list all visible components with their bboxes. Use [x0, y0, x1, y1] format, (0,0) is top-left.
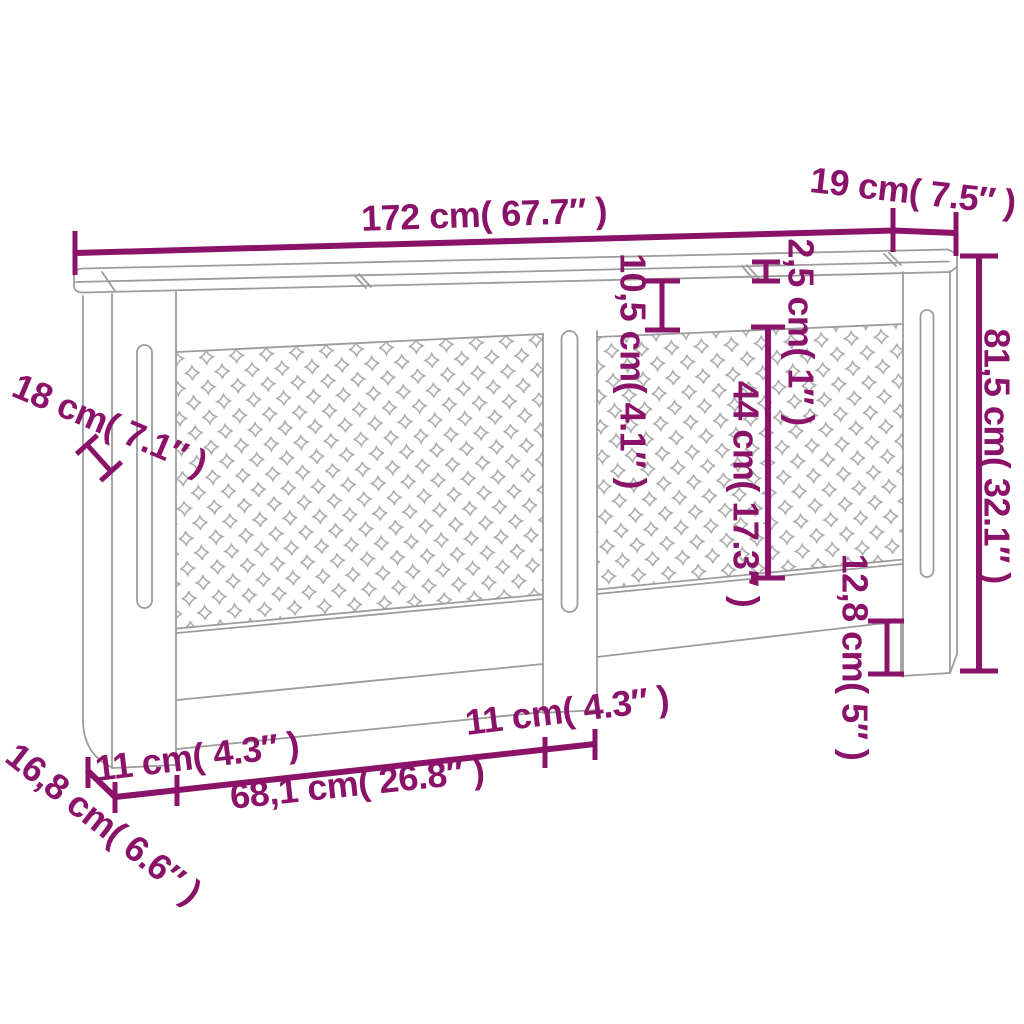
- dim-label-total-width: 172 cm( 67.7″ ): [360, 189, 607, 239]
- diagram-canvas: 172 cm( 67.7″ ) 19 cm( 7.5″ ) 81,5 cm( 3…: [0, 0, 1024, 1024]
- radiator-cover-dimension-diagram: 172 cm( 67.7″ ) 19 cm( 7.5″ ) 81,5 cm( 3…: [0, 0, 1024, 1024]
- dim-label-top-thickness: 2,5 cm( 1″ ): [780, 238, 821, 425]
- left-lattice-panel: [177, 334, 543, 629]
- dim-label-top-rail-height: 10,5 cm( 4.1″ ): [612, 253, 653, 489]
- dim-label-foot-height: 12,8 cm( 5″ ): [834, 554, 875, 761]
- dim-label-total-height: 81,5 cm( 32.1″ ): [976, 328, 1017, 583]
- left-panel-slot: [137, 345, 152, 608]
- divider-slot: [562, 331, 578, 612]
- dim-label-panel-height: 44 cm( 17.3″ ): [725, 381, 766, 607]
- right-panel-slot: [921, 310, 934, 577]
